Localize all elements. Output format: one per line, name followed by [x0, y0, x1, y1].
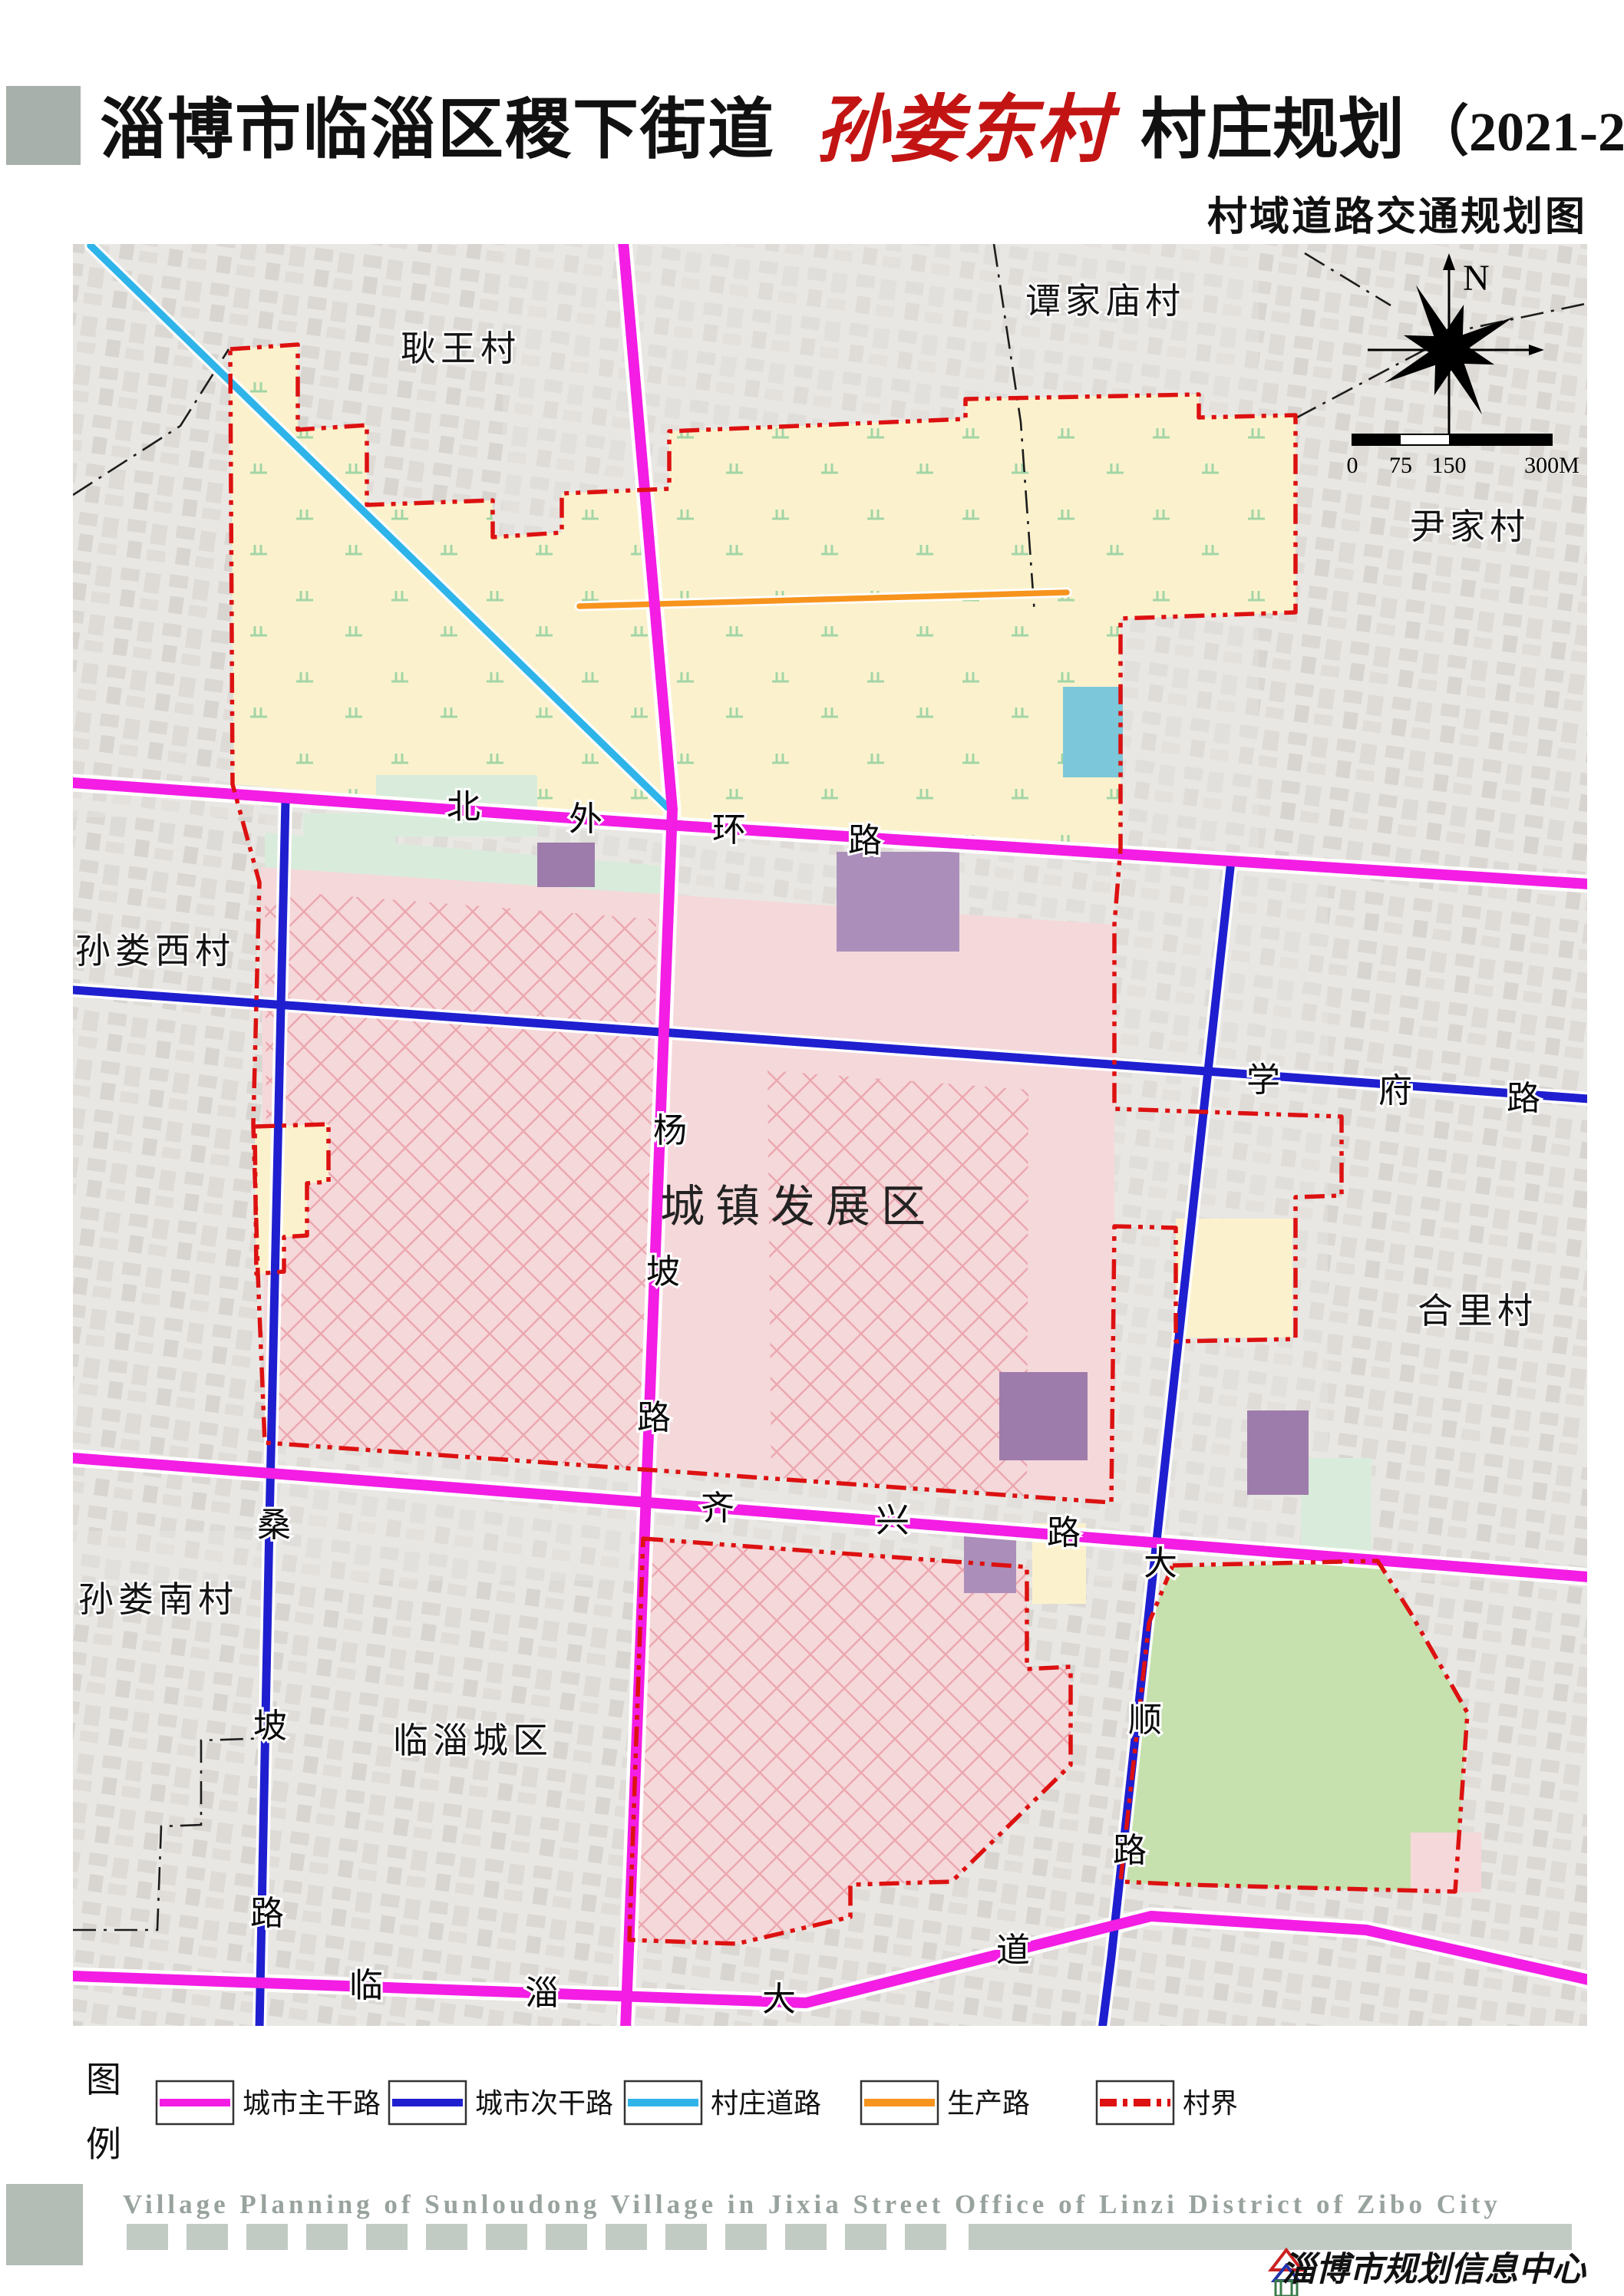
footer-dashed-bar	[127, 2224, 1572, 2250]
village-label: 合里村	[1418, 1291, 1537, 1331]
village-label: 临淄城区	[393, 1721, 553, 1760]
zone-teal-block	[1063, 687, 1123, 777]
deco-block-bottom	[6, 2184, 83, 2265]
scale-tick: 75	[1389, 453, 1412, 478]
road-label-char: 路	[250, 1895, 284, 1932]
road-label-char: 临	[349, 1967, 383, 2004]
road-label-char: 齐	[701, 1489, 734, 1527]
village-label: 耿王村	[401, 329, 520, 368]
road-label-char: 大	[762, 1981, 796, 2018]
planning-sheet: 淄博市临淄区稷下街道 孙娄东村 村庄规划 （2021-2035年） 村域道路交通…	[0, 0, 1624, 2296]
legend-item: 城市主干路	[157, 2081, 381, 2124]
legend-label: 城市次干路	[475, 2088, 613, 2119]
road-label-char: 路	[1113, 1832, 1147, 1869]
legend-title-char: 图	[86, 2060, 121, 2100]
scale-tick: 300M	[1524, 453, 1579, 478]
map-subtitle: 村域道路交通规划图	[1207, 195, 1587, 239]
road-label-char: 道	[996, 1931, 1030, 1969]
zone-green-notch	[1411, 1833, 1481, 1892]
road-label-char: 学	[1246, 1061, 1280, 1099]
footer-credit: 淄博市规划信息中心	[1282, 2251, 1587, 2288]
legend-item: 村界	[1097, 2081, 1238, 2124]
title-prefix: 淄博市临淄区稷下街道	[100, 93, 775, 167]
road-label-char: 坡	[253, 1707, 287, 1745]
legend-label: 村界	[1183, 2088, 1238, 2119]
map-canvas: 北 外 环 路 杨 坡 路 齐 兴 路 临 淄 大 道 学 府 路 桑 坡 路 …	[73, 242, 1589, 2030]
road-label-char: 坡	[646, 1253, 680, 1291]
scale-tick: 150	[1432, 453, 1467, 478]
road-label-char: 顺	[1128, 1701, 1162, 1739]
road-label-char: 桑	[257, 1506, 291, 1544]
road-label-char: 大	[1144, 1545, 1177, 1582]
road-label-char: 外	[569, 800, 602, 838]
title-years: （2021-2035年）	[1414, 101, 1624, 163]
title-village-name: 孙娄东村	[815, 89, 1121, 171]
road-label-char: 路	[1507, 1080, 1540, 1117]
compass-north-label: N	[1463, 258, 1490, 299]
road-label-char: 路	[637, 1399, 671, 1437]
title-suffix: 村庄规划	[1140, 93, 1404, 167]
footer-english-title: Village Planning of Sunloudong Village i…	[123, 2189, 1501, 2219]
deco-block-top	[6, 86, 81, 165]
road-label-char: 淄	[525, 1974, 559, 2012]
legend-label: 村庄道路	[711, 2088, 821, 2119]
legend-item: 村庄道路	[625, 2081, 821, 2124]
village-label: 孙娄南村	[78, 1580, 238, 1619]
village-label: 谭家庙村	[1025, 282, 1185, 321]
road-label-char: 兴	[876, 1502, 909, 1539]
road-label-char: 北	[447, 788, 480, 826]
legend-title-char: 例	[86, 2125, 121, 2164]
road-label-char: 路	[848, 822, 882, 859]
scale-tick: 0	[1347, 453, 1358, 478]
road-label-char: 路	[1047, 1514, 1081, 1552]
legend-label: 城市主干路	[243, 2088, 381, 2119]
legend-label: 生产路	[947, 2088, 1030, 2119]
legend-item: 城市次干路	[389, 2081, 613, 2124]
development-zone-label: 城镇发展区	[660, 1182, 936, 1232]
village-label: 孙娄西村	[75, 932, 235, 971]
road-label-char: 府	[1378, 1072, 1412, 1110]
road-label-char: 杨	[653, 1112, 687, 1150]
village-label: 尹家村	[1410, 507, 1530, 546]
road-label-char: 环	[712, 811, 746, 849]
